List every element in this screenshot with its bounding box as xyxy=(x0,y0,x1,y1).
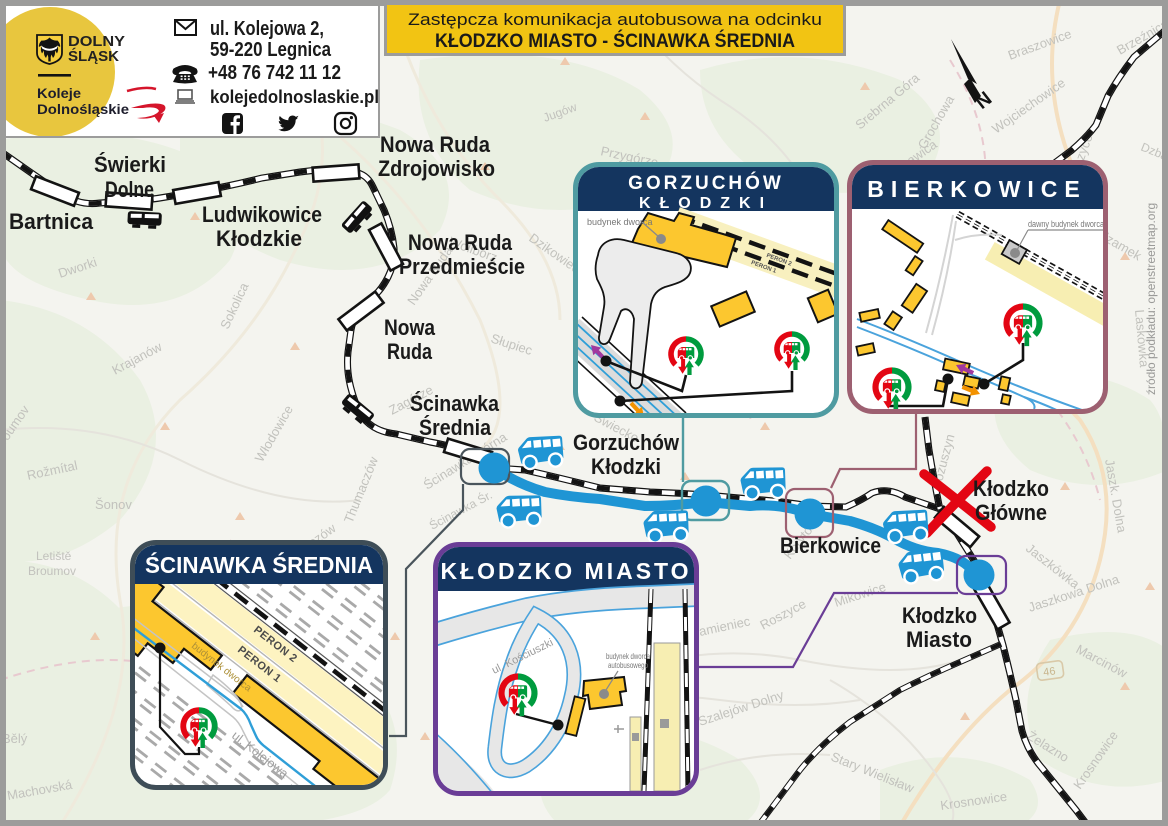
svg-text:Ruda: Ruda xyxy=(387,339,433,364)
svg-text:Kłodzkie: Kłodzkie xyxy=(216,226,302,251)
svg-text:46: 46 xyxy=(1043,665,1057,679)
svg-text:Bierkowice: Bierkowice xyxy=(780,533,881,558)
svg-text:Średnia: Średnia xyxy=(419,415,492,440)
svg-text:Kłodzko: Kłodzko xyxy=(902,603,977,628)
svg-text:Nowa Ruda: Nowa Ruda xyxy=(408,230,513,255)
svg-text:Koleje: Koleje xyxy=(37,85,81,101)
svg-text:DOLNY: DOLNY xyxy=(68,34,125,50)
svg-text:Letiště: Letiště xyxy=(36,549,72,563)
svg-text:59-220 Legnica: 59-220 Legnica xyxy=(210,39,332,61)
svg-text:Broumov: Broumov xyxy=(28,564,76,578)
svg-text:Główne: Główne xyxy=(975,500,1047,525)
svg-text:źródło podkładu: openstreetmap: źródło podkładu: openstreetmap.org xyxy=(1144,203,1158,395)
svg-text:autobusowego: autobusowego xyxy=(608,661,648,670)
svg-text:+48 76 742 11 12: +48 76 742 11 12 xyxy=(208,62,341,84)
svg-text:budynek dworca: budynek dworca xyxy=(606,652,650,661)
svg-text:Kłodzki: Kłodzki xyxy=(591,454,661,479)
svg-text:KŁODZKI: KŁODZKI xyxy=(639,195,773,212)
svg-text:Dolne: Dolne xyxy=(105,177,154,202)
svg-text:KŁODZKO MIASTO - ŚCINAWKA ŚRED: KŁODZKO MIASTO - ŚCINAWKA ŚREDNIA xyxy=(435,28,795,52)
svg-text:Gorzuchów: Gorzuchów xyxy=(573,430,680,455)
svg-text:Bartnica: Bartnica xyxy=(9,209,94,234)
svg-text:GORZUCHÓW: GORZUCHÓW xyxy=(628,172,784,194)
svg-text:Miasto: Miasto xyxy=(906,627,972,652)
svg-text:KŁODZKO MIASTO: KŁODZKO MIASTO xyxy=(440,558,691,584)
svg-text:Świerki: Świerki xyxy=(94,152,166,177)
svg-text:Zastępcza komunikacja autobu: Zastępcza komunikacja autobusowa na odci… xyxy=(408,11,822,29)
svg-text:Przedmieście: Przedmieście xyxy=(399,254,525,279)
svg-text:ŚLĄSK: ŚLĄSK xyxy=(68,47,120,65)
svg-text:Nowa: Nowa xyxy=(384,315,436,340)
svg-text:kolejedolnoslaskie.pl: kolejedolnoslaskie.pl xyxy=(210,87,378,107)
svg-text:Kłodzko: Kłodzko xyxy=(973,476,1049,501)
svg-text:BIERKOWICE: BIERKOWICE xyxy=(867,176,1087,202)
svg-text:Ludwikowice: Ludwikowice xyxy=(202,202,322,227)
svg-text:dawny budynek dworca: dawny budynek dworca xyxy=(1028,219,1103,229)
svg-text:Zdrojowisko: Zdrojowisko xyxy=(378,156,495,181)
svg-text:Nowa Ruda: Nowa Ruda xyxy=(380,132,491,157)
svg-text:ul. Kolejowa 2,: ul. Kolejowa 2, xyxy=(210,18,324,40)
svg-text:Šonov: Šonov xyxy=(95,497,132,512)
svg-text:Ścinawka: Ścinawka xyxy=(410,391,500,416)
svg-text:ŚCINAWKA ŚREDNIA: ŚCINAWKA ŚREDNIA xyxy=(145,551,373,578)
svg-text:Dolnośląskie: Dolnośląskie xyxy=(37,101,129,117)
